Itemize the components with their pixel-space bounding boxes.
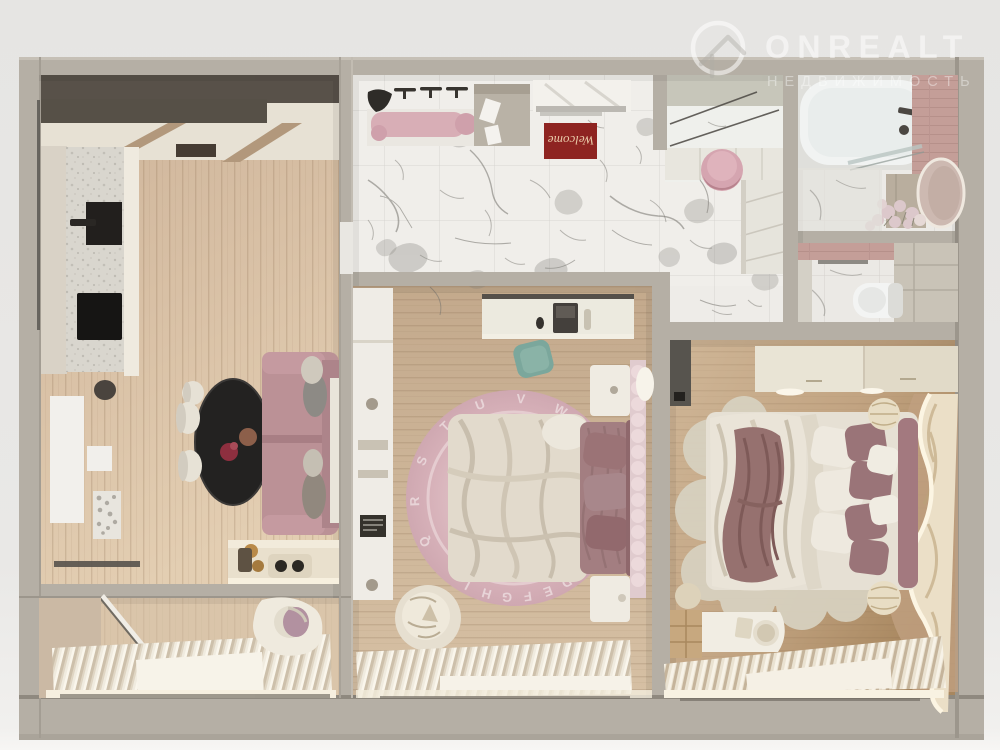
svg-text:V: V xyxy=(516,391,526,407)
svg-text:R: R xyxy=(407,496,422,507)
svg-text:G: G xyxy=(501,589,512,605)
svg-text:Welcome: Welcome xyxy=(548,133,595,148)
svg-text:НЕДВИЖИМОСТЬ: НЕДВИЖИМОСТЬ xyxy=(767,74,977,90)
svg-text:ONREALT: ONREALT xyxy=(765,29,970,65)
